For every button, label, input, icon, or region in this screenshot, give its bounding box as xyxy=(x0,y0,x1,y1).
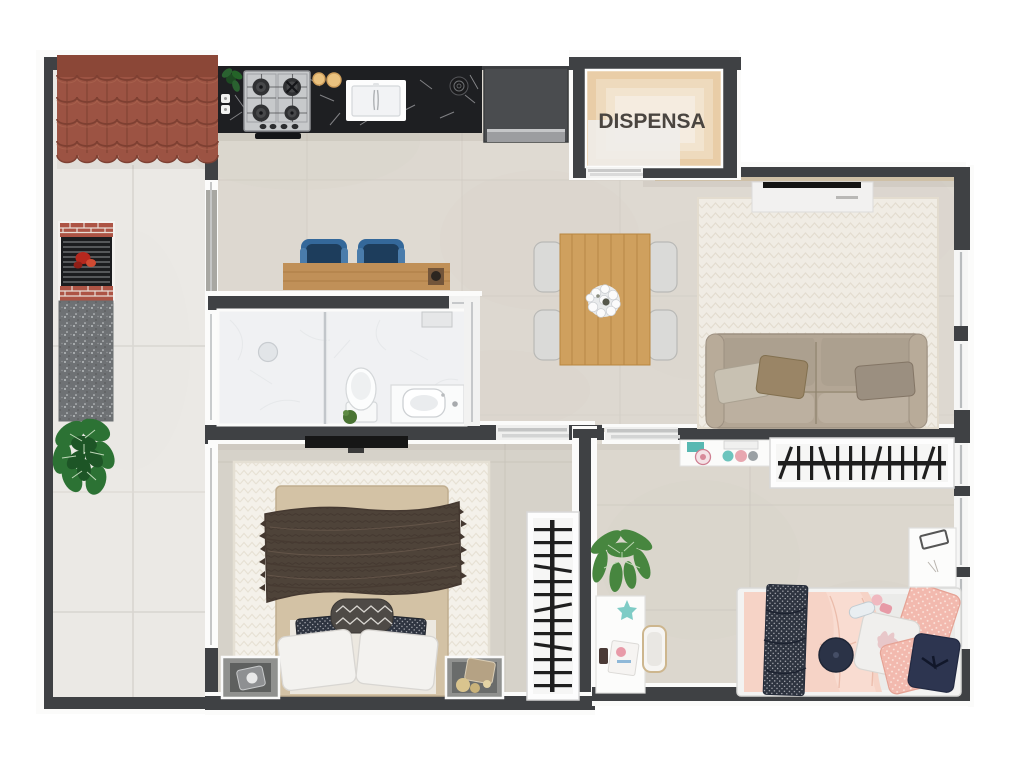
svg-text:DISPENSA: DISPENSA xyxy=(598,110,705,133)
